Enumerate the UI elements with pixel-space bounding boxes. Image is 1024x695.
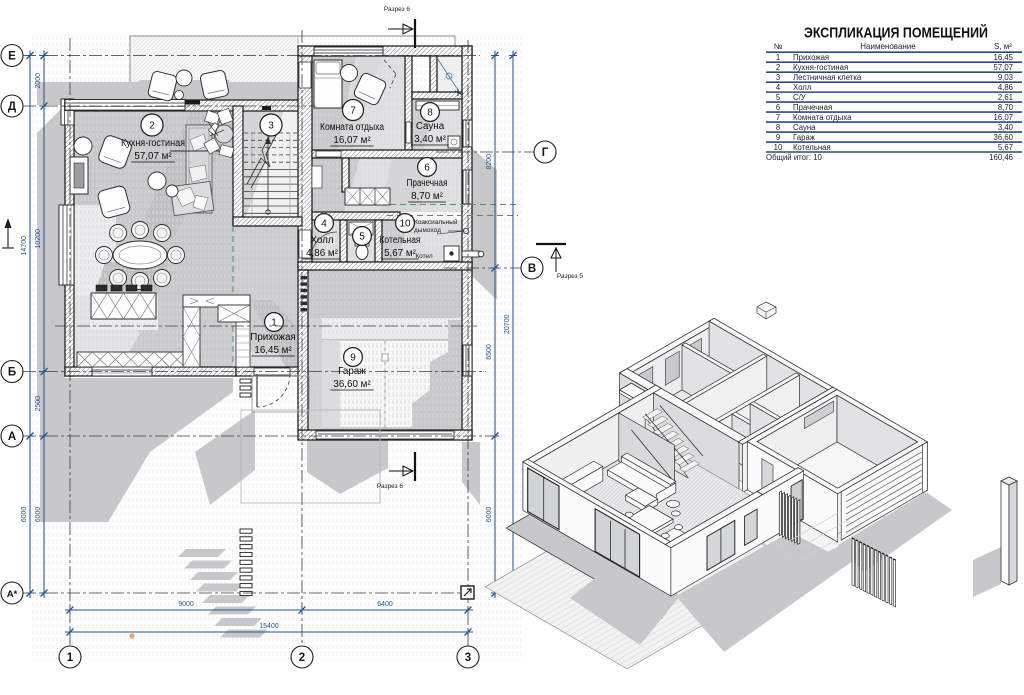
svg-text:14700: 14700 <box>21 236 28 256</box>
svg-text:дымоход: дымоход <box>414 227 441 234</box>
svg-text:8,70 м²: 8,70 м² <box>411 191 444 202</box>
svg-text:160,46: 160,46 <box>989 153 1013 162</box>
svg-text:9000: 9000 <box>178 601 194 608</box>
svg-text:6: 6 <box>424 163 430 174</box>
svg-text:6500: 6500 <box>486 344 493 360</box>
svg-text:3: 3 <box>268 121 274 132</box>
svg-text:20700: 20700 <box>504 314 511 334</box>
svg-text:6000: 6000 <box>35 507 42 523</box>
svg-text:16,07: 16,07 <box>993 113 1013 122</box>
svg-text:10: 10 <box>399 219 411 230</box>
svg-text:Разрез 5: Разрез 5 <box>557 273 584 280</box>
svg-text:9,03: 9,03 <box>998 73 1013 82</box>
svg-text:16,07 м²: 16,07 м² <box>333 135 371 146</box>
svg-text:9: 9 <box>776 133 780 142</box>
svg-text:Котельная: Котельная <box>380 235 421 246</box>
svg-text:3: 3 <box>465 652 471 664</box>
svg-text:Холл: Холл <box>793 83 812 92</box>
svg-text:№: № <box>774 42 783 51</box>
svg-text:4,86: 4,86 <box>998 83 1013 92</box>
svg-text:16,45: 16,45 <box>993 53 1013 62</box>
svg-text:2500: 2500 <box>35 396 42 412</box>
svg-text:1: 1 <box>67 652 74 664</box>
svg-text:36,60 м²: 36,60 м² <box>333 379 371 390</box>
svg-text:Комната отдыха: Комната отдыха <box>320 122 384 133</box>
svg-text:3,40 м²: 3,40 м² <box>414 134 447 145</box>
svg-text:А*: А* <box>7 589 18 600</box>
svg-text:6000: 6000 <box>21 507 28 523</box>
svg-text:Прачечная: Прачечная <box>407 178 448 189</box>
svg-text:Б: Б <box>8 367 16 379</box>
svg-text:2: 2 <box>299 652 305 664</box>
svg-text:Коаксиальный: Коаксиальный <box>414 218 458 226</box>
svg-text:4,86 м²: 4,86 м² <box>306 248 339 259</box>
svg-text:Котел: Котел <box>415 253 433 260</box>
svg-text:10: 10 <box>774 143 783 152</box>
svg-text:1: 1 <box>271 318 277 329</box>
svg-text:15400: 15400 <box>259 623 279 630</box>
svg-text:ЭКСПЛИКАЦИЯ ПОМЕЩЕНИЙ: ЭКСПЛИКАЦИЯ ПОМЕЩЕНИЙ <box>804 24 988 42</box>
svg-text:4: 4 <box>321 219 327 230</box>
svg-text:8: 8 <box>427 108 433 119</box>
svg-text:7: 7 <box>776 113 780 122</box>
svg-text:Разрез 6: Разрез 6 <box>384 6 411 13</box>
svg-text:5: 5 <box>776 93 781 102</box>
svg-text:5: 5 <box>359 232 365 243</box>
svg-text:6400: 6400 <box>377 601 393 608</box>
svg-text:Общий итог: 10: Общий итог: 10 <box>766 153 823 162</box>
svg-text:10200: 10200 <box>35 229 42 249</box>
svg-text:3,40: 3,40 <box>998 123 1014 132</box>
svg-text:Сауна: Сауна <box>793 123 816 132</box>
svg-text:Прихожая: Прихожая <box>793 53 829 62</box>
svg-text:Гараж: Гараж <box>793 133 816 142</box>
svg-text:5,67: 5,67 <box>998 143 1013 152</box>
svg-text:8,70: 8,70 <box>998 103 1014 112</box>
svg-text:1: 1 <box>776 53 780 62</box>
svg-text:Г: Г <box>542 147 549 159</box>
svg-text:Котельная: Котельная <box>793 143 831 152</box>
svg-text:5,67 м²: 5,67 м² <box>384 248 417 259</box>
svg-text:Сауна: Сауна <box>416 121 445 132</box>
svg-text:2,61: 2,61 <box>998 93 1013 102</box>
svg-text:2000: 2000 <box>35 73 42 89</box>
svg-text:Кухня-гостиная: Кухня-гостиная <box>121 138 185 149</box>
svg-text:Наименование: Наименование <box>860 42 916 51</box>
svg-text:57,07 м²: 57,07 м² <box>134 151 172 162</box>
svg-text:6000: 6000 <box>486 507 493 523</box>
svg-text:В: В <box>528 263 536 275</box>
svg-text:S, м²: S, м² <box>994 42 1012 51</box>
svg-text:4: 4 <box>776 83 781 92</box>
svg-text:2: 2 <box>776 63 780 72</box>
svg-text:7: 7 <box>350 106 356 117</box>
svg-text:Прихожая: Прихожая <box>250 332 295 343</box>
svg-text:Д: Д <box>8 101 16 113</box>
svg-text:3: 3 <box>776 73 780 82</box>
svg-text:Холл: Холл <box>310 235 333 246</box>
svg-text:2: 2 <box>149 121 155 132</box>
svg-text:Кухня-гостиная: Кухня-гостиная <box>793 63 848 72</box>
svg-text:С/У: С/У <box>793 93 806 102</box>
svg-text:16,45 м²: 16,45 м² <box>254 345 292 356</box>
svg-text:Е: Е <box>8 51 16 63</box>
svg-text:6: 6 <box>776 103 780 112</box>
svg-text:А: А <box>8 431 16 443</box>
svg-text:Прачечная: Прачечная <box>793 103 832 112</box>
svg-text:9: 9 <box>350 353 356 364</box>
svg-text:36,60: 36,60 <box>993 133 1013 142</box>
svg-text:Комната отдыха: Комната отдыха <box>793 113 852 122</box>
svg-text:Разрез 6: Разрез 6 <box>377 483 404 490</box>
svg-text:8: 8 <box>776 123 780 132</box>
svg-text:57,07: 57,07 <box>993 63 1013 72</box>
svg-text:Лестничная клетка: Лестничная клетка <box>793 73 862 82</box>
svg-text:8200: 8200 <box>486 154 493 170</box>
